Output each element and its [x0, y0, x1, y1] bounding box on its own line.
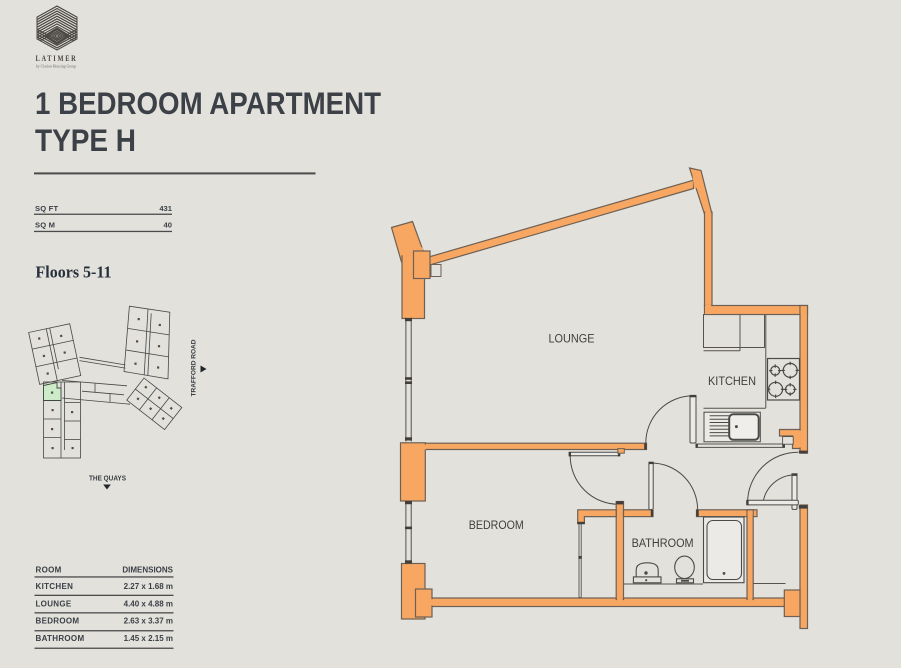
svg-text:Floors 5-11: Floors 5-11 [36, 263, 112, 282]
svg-text:BATHROOM: BATHROOM [36, 634, 85, 643]
svg-text:40: 40 [164, 221, 172, 230]
svg-text:LOUNGE: LOUNGE [36, 599, 72, 608]
svg-text:BEDROOM: BEDROOM [36, 617, 80, 626]
svg-text:431: 431 [159, 204, 172, 213]
svg-text:1 BEDROOM APARTMENT: 1 BEDROOM APARTMENT [35, 85, 381, 121]
svg-text:KITCHEN: KITCHEN [36, 582, 74, 591]
svg-text:THE QUAYS: THE QUAYS [89, 474, 126, 483]
svg-text:DIMENSIONS: DIMENSIONS [122, 566, 173, 575]
svg-text:LATIMER: LATIMER [36, 54, 78, 63]
svg-text:TRAFFORD ROAD: TRAFFORD ROAD [191, 339, 198, 396]
svg-text:ROOM: ROOM [36, 566, 62, 575]
svg-text:BEDROOM: BEDROOM [469, 518, 524, 532]
svg-text:SQ M: SQ M [35, 221, 55, 230]
svg-text:2.63 x 3.37 m: 2.63 x 3.37 m [124, 617, 173, 626]
svg-text:1.45 x 2.15 m: 1.45 x 2.15 m [124, 634, 173, 643]
svg-text:2.27 x 1.68 m: 2.27 x 1.68 m [124, 582, 173, 591]
svg-text:BATHROOM: BATHROOM [632, 536, 694, 550]
svg-text:LOUNGE: LOUNGE [549, 332, 595, 346]
svg-text:4.40 x 4.88 m: 4.40 x 4.88 m [124, 599, 173, 608]
svg-text:TYPE H: TYPE H [35, 122, 136, 158]
svg-text:SQ FT: SQ FT [35, 204, 59, 213]
svg-text:KITCHEN: KITCHEN [708, 375, 756, 388]
svg-text:by Clarion Housing Group: by Clarion Housing Group [36, 64, 76, 69]
